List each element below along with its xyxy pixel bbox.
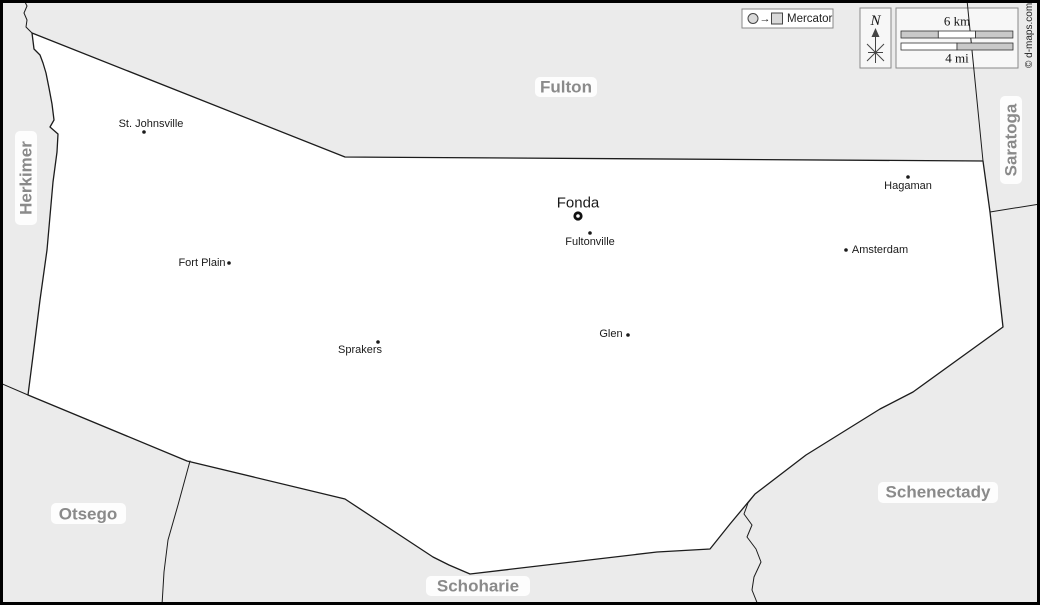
county-label-fulton: Fulton bbox=[535, 77, 597, 97]
town-dot bbox=[588, 231, 592, 235]
county-name: Schoharie bbox=[437, 577, 519, 596]
county-name: Herkimer bbox=[17, 141, 36, 215]
county-label-schenectady: Schenectady bbox=[878, 482, 998, 503]
county-name: Otsego bbox=[59, 505, 118, 524]
town-dot bbox=[142, 130, 146, 134]
town-dot bbox=[844, 248, 848, 252]
town-fort-plain: Fort Plain bbox=[178, 257, 230, 269]
county-label-otsego: Otsego bbox=[51, 503, 126, 524]
projected-square-icon bbox=[772, 13, 783, 24]
town-name: Fonda bbox=[557, 195, 600, 212]
town-dot bbox=[227, 261, 231, 265]
scale-mi-label: 4 mi bbox=[945, 51, 969, 66]
town-amsterdam: Amsterdam bbox=[844, 244, 908, 256]
county-name: Fulton bbox=[540, 78, 592, 97]
town-name: Amsterdam bbox=[852, 244, 908, 256]
projection-legend: → Mercator bbox=[742, 9, 833, 28]
town-name: Glen bbox=[599, 328, 622, 340]
county-label-schoharie: Schoharie bbox=[426, 576, 530, 596]
county-label-saratoga: Saratoga bbox=[1000, 96, 1022, 184]
town-name: Hagaman bbox=[884, 180, 932, 192]
map-page: → Mercator N 6 km 4 mi bbox=[0, 0, 1040, 605]
county-seat-ring bbox=[575, 213, 581, 219]
copyright-label: © d-maps.com bbox=[1024, 3, 1035, 68]
county-name: Schenectady bbox=[886, 483, 991, 502]
town-name: Fultonville bbox=[565, 236, 615, 248]
town-name: Fort Plain bbox=[178, 257, 225, 269]
county-name: Saratoga bbox=[1002, 103, 1021, 176]
globe-circle-icon bbox=[748, 14, 758, 24]
projection-label: Mercator bbox=[787, 13, 833, 25]
scale-km-bar bbox=[901, 31, 1013, 38]
arrow-right-icon: → bbox=[760, 13, 771, 25]
county-label-herkimer: Herkimer bbox=[15, 131, 37, 225]
town-dot bbox=[626, 333, 630, 337]
town-name: Sprakers bbox=[338, 344, 383, 356]
scale-km-label: 6 km bbox=[944, 14, 970, 29]
town-dot bbox=[906, 175, 910, 179]
town-name: St. Johnsville bbox=[119, 118, 184, 130]
compass: N bbox=[860, 8, 891, 68]
map-svg: → Mercator N 6 km 4 mi bbox=[0, 0, 1040, 605]
scale-mi-bar bbox=[901, 43, 1013, 50]
compass-north-label: N bbox=[869, 13, 881, 29]
